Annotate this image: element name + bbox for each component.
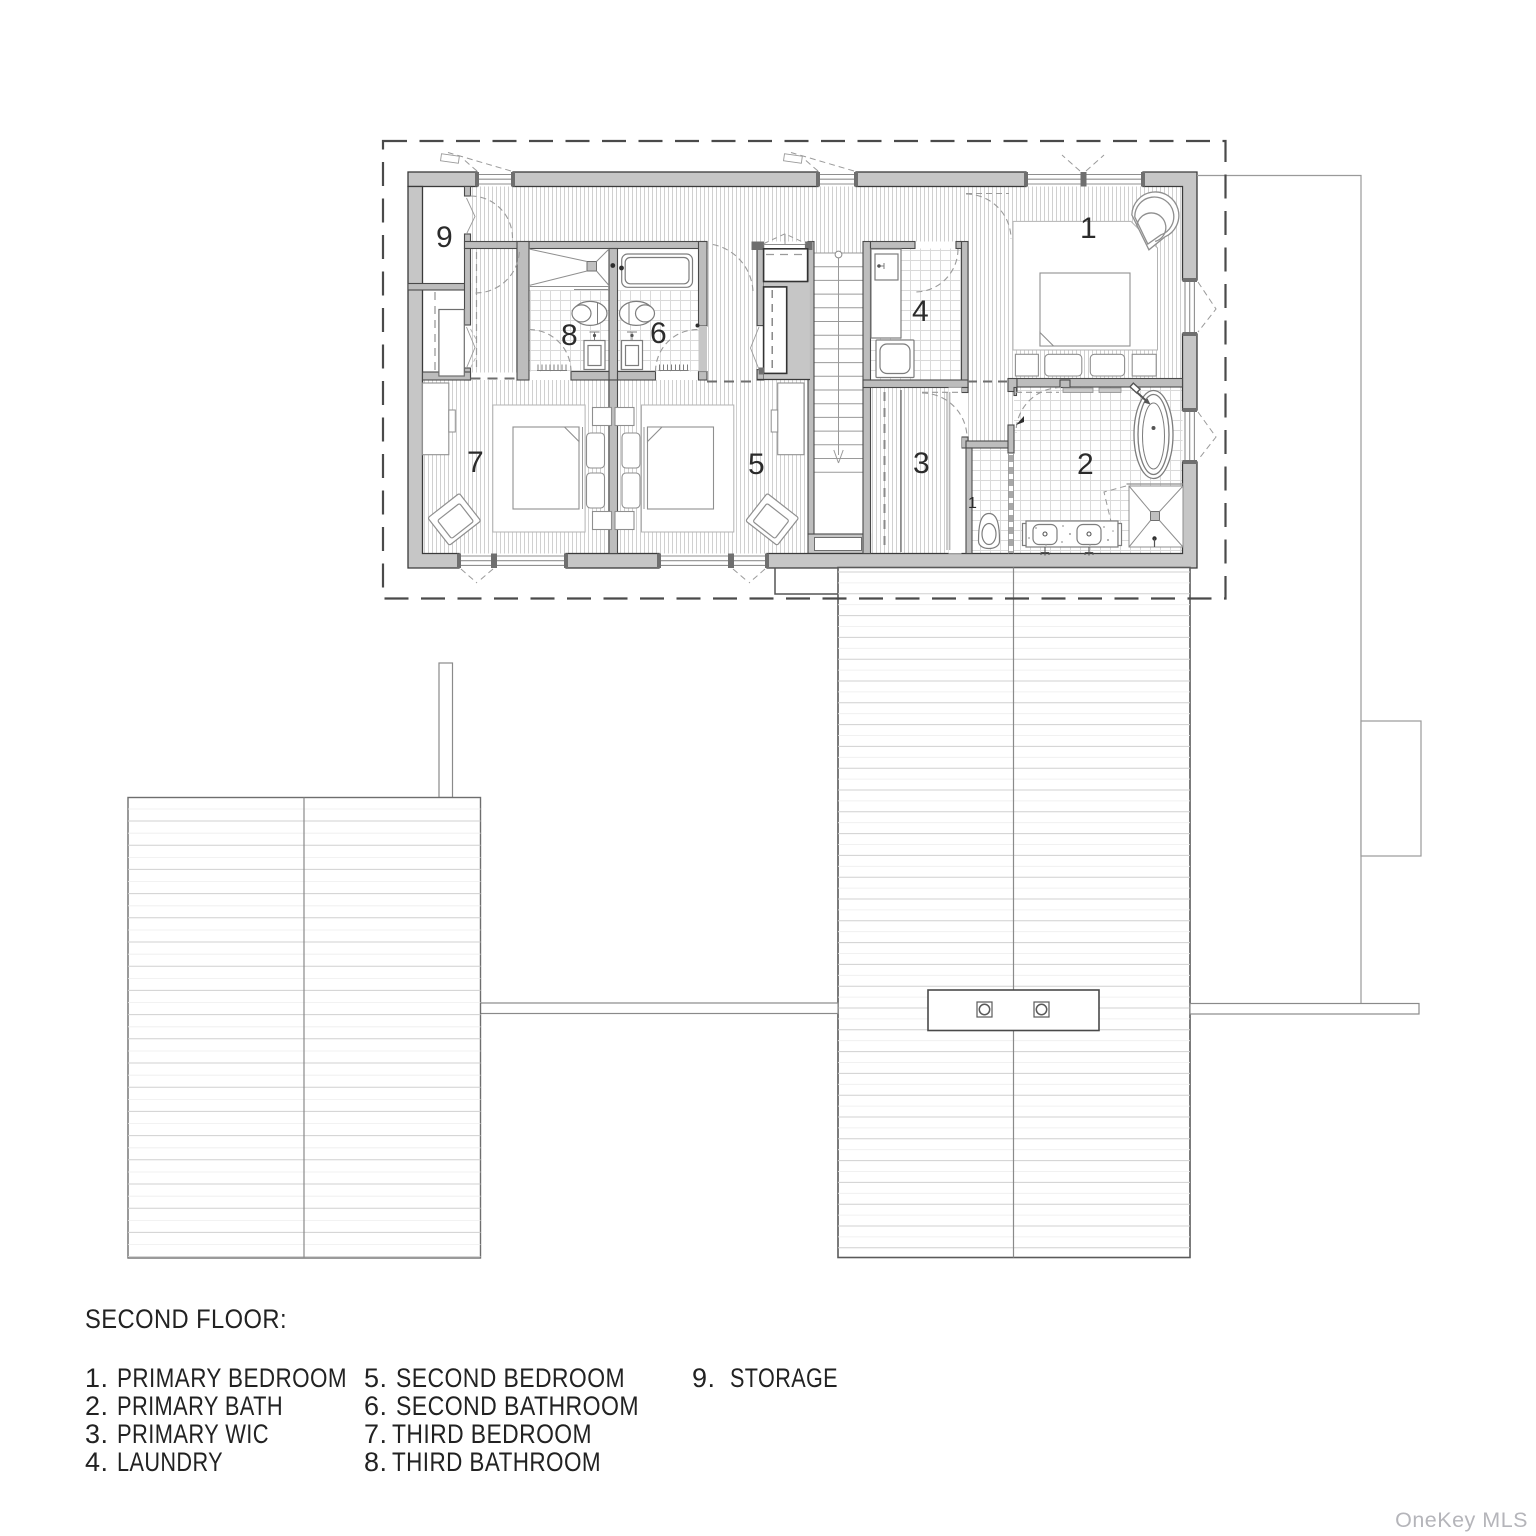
svg-text:LAUNDRY: LAUNDRY — [117, 1447, 223, 1477]
svg-text:SECOND FLOOR:: SECOND FLOOR: — [85, 1304, 287, 1334]
svg-text:9: 9 — [436, 221, 453, 254]
svg-text:8: 8 — [561, 319, 578, 352]
svg-text:THIRD BATHROOM: THIRD BATHROOM — [392, 1447, 601, 1477]
svg-text:PRIMARY BATH: PRIMARY BATH — [117, 1391, 283, 1421]
svg-text:6: 6 — [650, 317, 667, 350]
svg-text:4.: 4. — [85, 1447, 109, 1477]
svg-text:3: 3 — [913, 447, 930, 480]
svg-text:7.: 7. — [364, 1419, 388, 1449]
svg-text:6.: 6. — [364, 1391, 388, 1421]
svg-text:1.: 1. — [85, 1363, 109, 1393]
svg-text:8.: 8. — [364, 1447, 388, 1477]
svg-text:1: 1 — [968, 495, 977, 512]
svg-text:SECOND BEDROOM: SECOND BEDROOM — [396, 1363, 625, 1393]
svg-text:STORAGE: STORAGE — [730, 1363, 838, 1393]
svg-text:SECOND BATHROOM: SECOND BATHROOM — [396, 1391, 639, 1421]
svg-text:3.: 3. — [85, 1419, 109, 1449]
svg-text:7: 7 — [467, 446, 484, 479]
svg-text:4: 4 — [912, 295, 929, 328]
svg-text:9.: 9. — [692, 1363, 716, 1393]
svg-text:PRIMARY BEDROOM: PRIMARY BEDROOM — [117, 1363, 347, 1393]
svg-text:1: 1 — [1080, 212, 1097, 245]
svg-text:PRIMARY WIC: PRIMARY WIC — [117, 1419, 269, 1449]
svg-text:OneKey MLS: OneKey MLS — [1395, 1508, 1528, 1532]
svg-text:5: 5 — [748, 448, 765, 481]
svg-text:THIRD BEDROOM: THIRD BEDROOM — [392, 1419, 592, 1449]
svg-text:2.: 2. — [85, 1391, 109, 1421]
svg-text:2: 2 — [1077, 448, 1094, 481]
svg-text:5.: 5. — [364, 1363, 388, 1393]
